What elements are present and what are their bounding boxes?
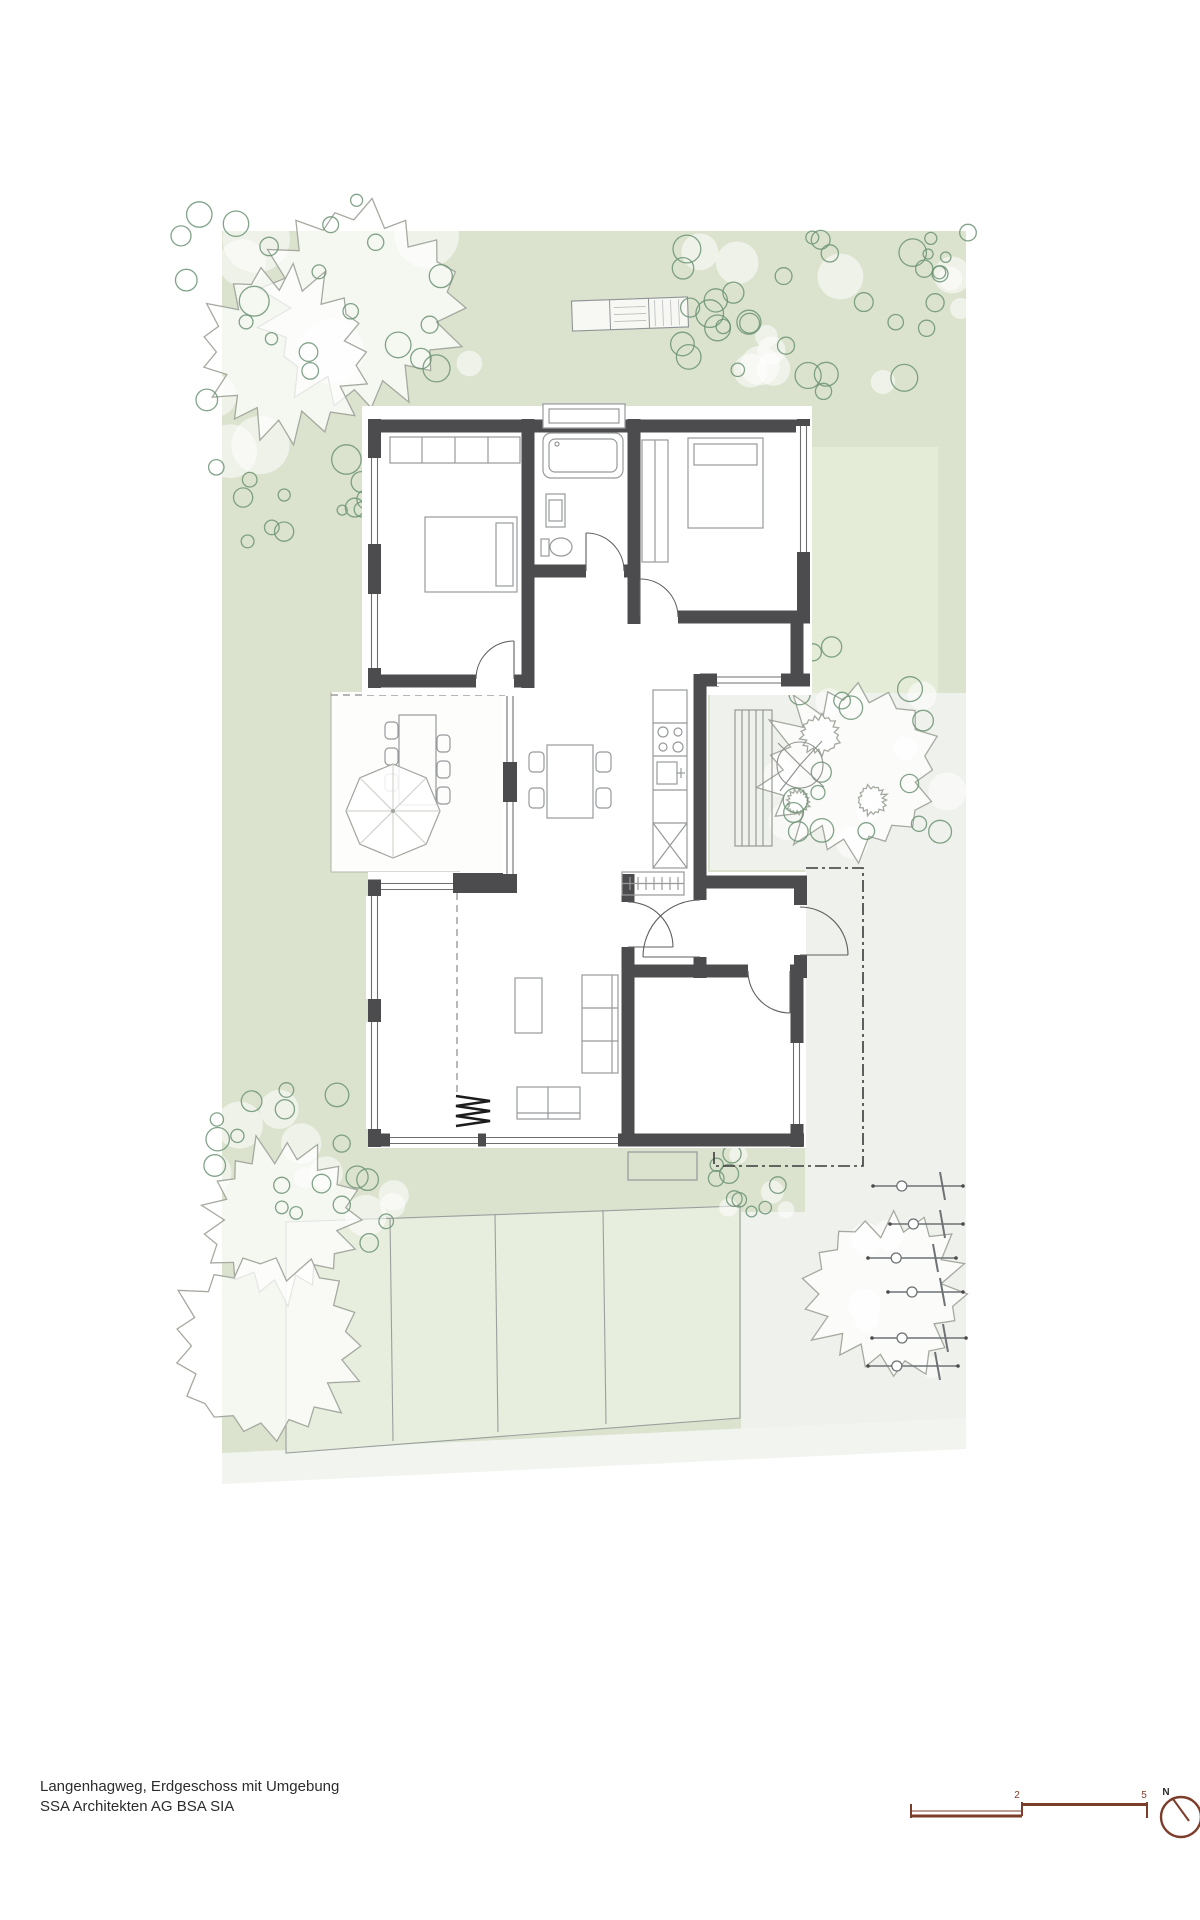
espalier-bud xyxy=(892,1361,902,1371)
site-plan-drawing: Langenhagweg, Erdgeschoss mit Umgebung S… xyxy=(0,0,1200,1920)
bokeh-circle xyxy=(457,351,483,377)
bokeh-circle xyxy=(719,1198,737,1216)
espalier-end xyxy=(871,1184,875,1188)
espalier-end xyxy=(886,1290,890,1294)
espalier-end xyxy=(956,1364,960,1368)
shrub-circle xyxy=(171,226,191,246)
espalier-end xyxy=(866,1364,870,1368)
espalier-bud xyxy=(897,1181,907,1191)
espalier-bud xyxy=(908,1219,918,1229)
bokeh-circle xyxy=(716,241,759,284)
scale-label-2: 2 xyxy=(1014,1790,1020,1801)
espalier-bud xyxy=(891,1253,901,1263)
bokeh-circle xyxy=(204,424,258,478)
bath-niche xyxy=(543,404,625,428)
bokeh-circle xyxy=(778,1201,795,1218)
north-arrow-needle xyxy=(1173,1799,1189,1821)
scale-bar: 2 5 xyxy=(911,1790,1147,1818)
parasol-pole xyxy=(391,809,395,813)
west-terrace xyxy=(331,692,516,872)
garden-shed xyxy=(572,297,689,331)
espalier-bud xyxy=(907,1287,917,1297)
espalier-end xyxy=(961,1184,965,1188)
shrub-circle xyxy=(187,202,212,227)
north-label: N xyxy=(1162,1787,1169,1798)
garden-beds xyxy=(286,1206,740,1453)
bokeh-circle xyxy=(260,1090,299,1129)
espalier-end xyxy=(954,1256,958,1260)
espalier-end xyxy=(961,1222,965,1226)
title-block: Langenhagweg, Erdgeschoss mit Umgebung S… xyxy=(40,1778,339,1815)
espalier-end xyxy=(888,1222,892,1226)
bokeh-circle xyxy=(395,180,420,205)
plan-author: SSA Architekten AG BSA SIA xyxy=(40,1798,234,1815)
parasol-umbrella xyxy=(346,764,440,858)
espalier-bud xyxy=(897,1333,907,1343)
north-arrow-circle xyxy=(1161,1797,1200,1837)
lawn-light-patch xyxy=(812,447,938,693)
plan-title: Langenhagweg, Erdgeschoss mit Umgebung xyxy=(40,1778,339,1795)
espalier-end xyxy=(870,1336,874,1340)
bokeh-circle xyxy=(950,298,971,319)
espalier-end xyxy=(964,1336,968,1340)
bokeh-circle xyxy=(928,772,966,810)
espalier-end xyxy=(961,1290,965,1294)
north-arrow: N xyxy=(1161,1787,1200,1837)
espalier-end xyxy=(866,1256,870,1260)
bokeh-circle xyxy=(740,346,779,385)
shrub-circle xyxy=(351,194,363,206)
scale-label-5: 5 xyxy=(1141,1790,1147,1801)
shrub-circle xyxy=(176,269,198,291)
